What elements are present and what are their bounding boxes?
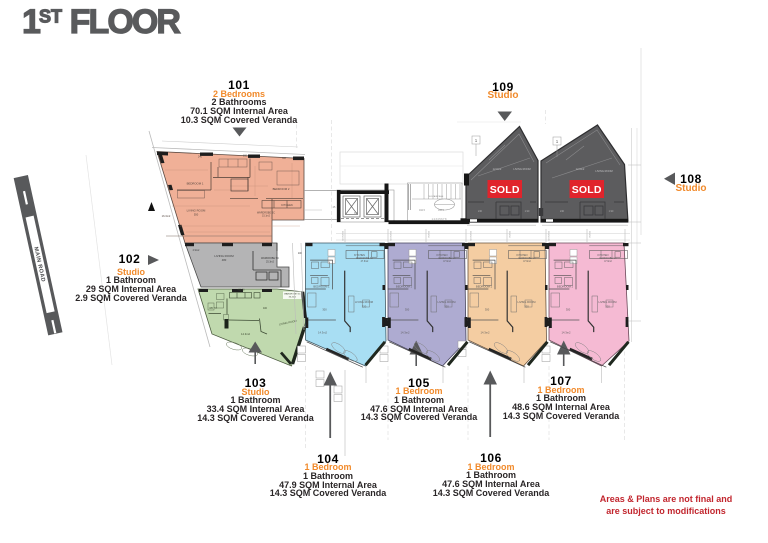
svg-text:SOLD: SOLD: [490, 184, 520, 196]
svg-text:BEDROOM 1: BEDROOM 1: [187, 182, 204, 186]
svg-text:25.3m2: 25.3m2: [266, 260, 275, 263]
svg-text:WARDROBE SC: WARDROBE SC: [284, 293, 301, 296]
svg-text:240: 240: [560, 210, 565, 213]
svg-text:12.0m2: 12.0m2: [576, 167, 585, 171]
svg-text:LIVING ROOM: LIVING ROOM: [187, 209, 206, 213]
svg-text:16.3m2: 16.3m2: [162, 214, 171, 218]
svg-text:WD TO: WD TO: [209, 308, 217, 310]
svg-text:W.STAIRCASE: W.STAIRCASE: [429, 195, 444, 198]
svg-text:KITCHEN: KITCHEN: [281, 203, 293, 207]
svg-text:BEDROOM 2: BEDROOM 2: [273, 187, 290, 191]
svg-text:300: 300: [243, 155, 248, 158]
svg-text:28 150: 28 150: [508, 231, 510, 238]
svg-text:300: 300: [282, 157, 287, 160]
svg-text:LIVING ROOM: LIVING ROOM: [595, 169, 612, 173]
svg-text:1.90: 1.90: [525, 210, 530, 213]
svg-text:370: 370: [354, 212, 359, 215]
svg-text:15.1m2: 15.1m2: [262, 215, 271, 218]
svg-text:25: 25: [333, 206, 336, 209]
svg-text:240: 240: [478, 210, 483, 213]
svg-text:28 150 20: 28 150 20: [469, 231, 471, 242]
svg-text:240: 240: [198, 156, 203, 159]
svg-text:550: 550: [194, 213, 199, 217]
svg-text:28 150 20: 28 150 20: [389, 231, 391, 242]
svg-text:28 150: 28 150: [588, 231, 590, 238]
svg-text:12.0m2: 12.0m2: [493, 167, 502, 171]
svg-text:162.5: 162.5: [438, 210, 444, 212]
svg-text:2.9m2: 2.9m2: [193, 249, 200, 252]
svg-text:28 150 20: 28 150 20: [341, 231, 343, 242]
svg-text:33.4m2: 33.4m2: [289, 297, 297, 299]
svg-text:28 150 20: 28 150 20: [547, 231, 549, 242]
svg-text:460 50: 460 50: [237, 290, 245, 292]
svg-text:100: 100: [298, 252, 303, 255]
svg-text:14.3m2: 14.3m2: [241, 332, 250, 336]
svg-text:28 150: 28 150: [427, 231, 429, 238]
svg-text:162.5: 162.5: [419, 210, 425, 212]
svg-text:400: 400: [263, 307, 268, 310]
svg-text:1.90: 1.90: [609, 210, 614, 213]
svg-text:LIVING ROOM: LIVING ROOM: [513, 167, 530, 171]
